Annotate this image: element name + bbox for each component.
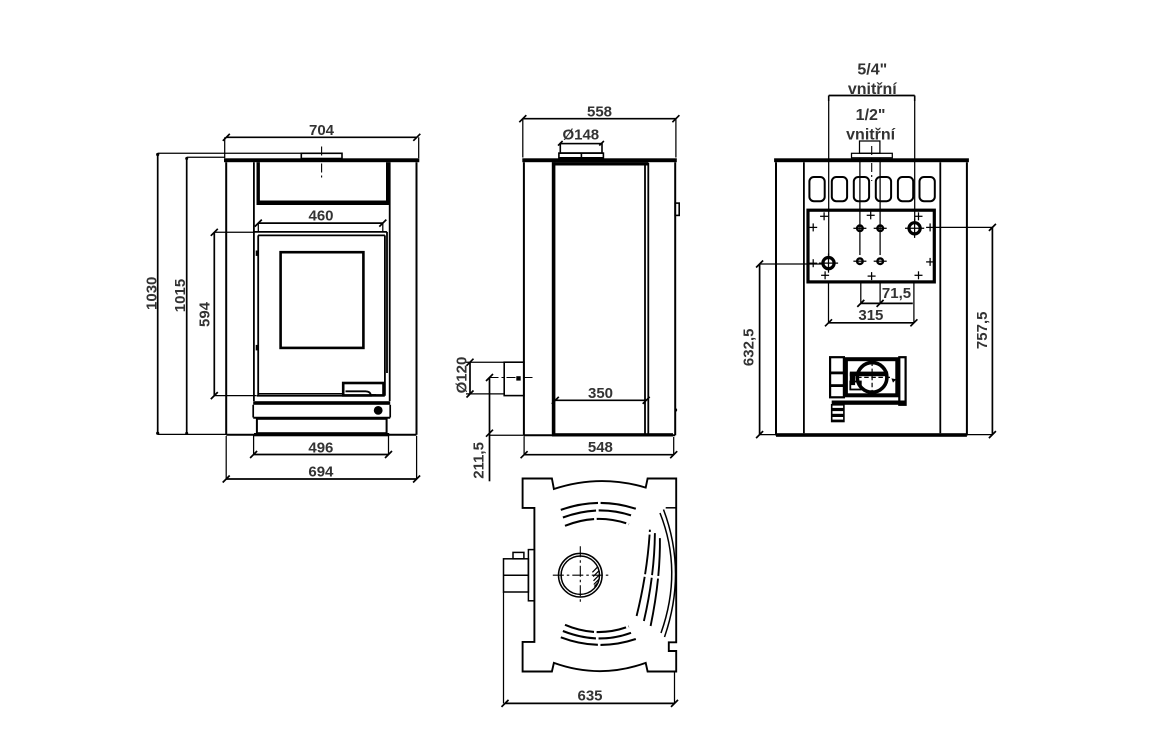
svg-text:594: 594 <box>197 301 214 327</box>
svg-text:Ø148: Ø148 <box>562 127 599 144</box>
svg-text:211,5: 211,5 <box>471 442 488 479</box>
svg-text:315: 315 <box>858 307 883 324</box>
svg-text:5/4": 5/4" <box>857 62 887 79</box>
svg-text:632,5: 632,5 <box>740 329 757 367</box>
svg-text:757,5: 757,5 <box>974 312 991 350</box>
svg-text:1/2": 1/2" <box>856 107 886 124</box>
svg-text:704: 704 <box>309 122 335 139</box>
svg-text:Ø120: Ø120 <box>454 357 471 394</box>
svg-text:496: 496 <box>308 439 333 456</box>
svg-text:1015: 1015 <box>172 279 189 312</box>
svg-text:71,5: 71,5 <box>882 285 911 302</box>
svg-text:460: 460 <box>308 207 333 224</box>
svg-text:1030: 1030 <box>144 277 161 310</box>
svg-text:548: 548 <box>588 439 613 456</box>
svg-text:558: 558 <box>587 104 612 121</box>
svg-text:635: 635 <box>577 687 602 704</box>
svg-text:694: 694 <box>308 464 334 481</box>
svg-text:350: 350 <box>588 385 613 402</box>
